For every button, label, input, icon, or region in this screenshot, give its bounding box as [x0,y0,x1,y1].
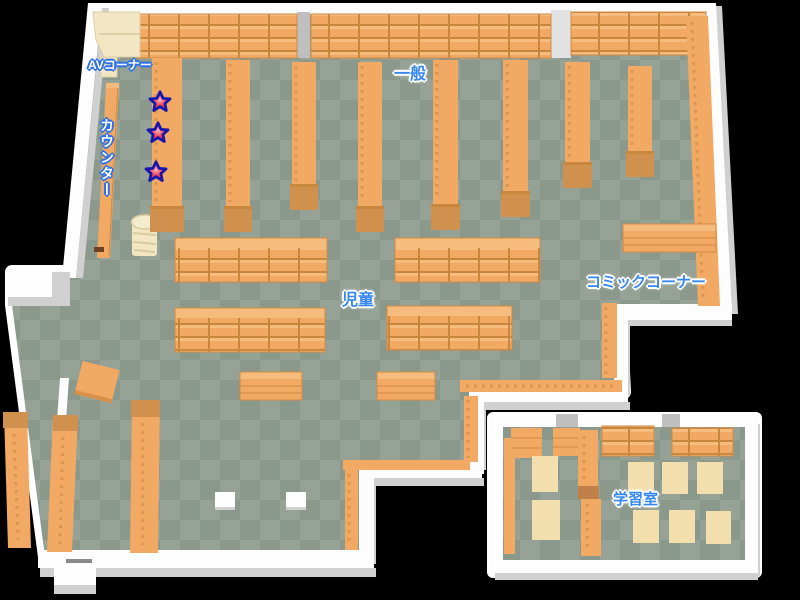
bookshelf [672,428,733,456]
bookshelf [464,396,478,462]
bookshelf [150,58,184,232]
desk [706,511,731,544]
bookshelf [224,60,252,232]
bookshelf [395,238,540,282]
bookshelf [290,62,318,210]
bookshelf [130,400,160,553]
bookshelf [431,60,460,230]
bookshelf [571,12,706,55]
desk [697,462,723,494]
top-wall-gap [551,10,571,58]
bookshelf [3,412,31,548]
bookshelf [240,372,302,400]
desk [669,510,695,543]
label-general: 一般 [394,60,426,84]
bookshelf [175,238,327,282]
bookshelf [623,224,716,252]
label-av-corner: AVコーナー [88,56,152,73]
label-study-room: 学習室 [613,488,658,509]
bookshelf [460,380,622,392]
bookshelf [377,372,435,400]
wall-shelves-top [133,12,706,58]
bookshelf [311,14,551,58]
bookshelf [133,14,297,58]
bookshelf [511,428,542,458]
bookshelf [387,306,512,350]
bookshelf [175,308,325,352]
bookshelf [501,60,530,217]
bookshelf [602,426,654,456]
bookshelf [602,303,617,378]
bookshelf [626,66,654,177]
study-room-door [662,414,680,427]
label-children: 児童 [342,286,374,310]
entrance-door-mark [66,559,92,563]
desk [532,500,560,540]
desk [532,456,558,492]
library-floor-map: AVコーナー カウンター 一般 児童 コミックコーナー 学習室 [0,0,800,600]
desk [662,462,688,494]
bookshelf [356,62,384,232]
label-counter: カウンター [97,118,117,198]
counter-end-mark [94,247,104,252]
bookshelf [345,470,358,550]
label-comic-corner: コミックコーナー [586,271,706,292]
bookshelf [553,428,580,456]
divider-shelf [578,430,601,556]
top-wall-gap [297,12,310,58]
desk [633,510,659,543]
study-room-door [556,414,578,427]
bookshelf [343,460,470,470]
floor-map-canvas [0,0,800,600]
bookshelf [563,62,592,188]
